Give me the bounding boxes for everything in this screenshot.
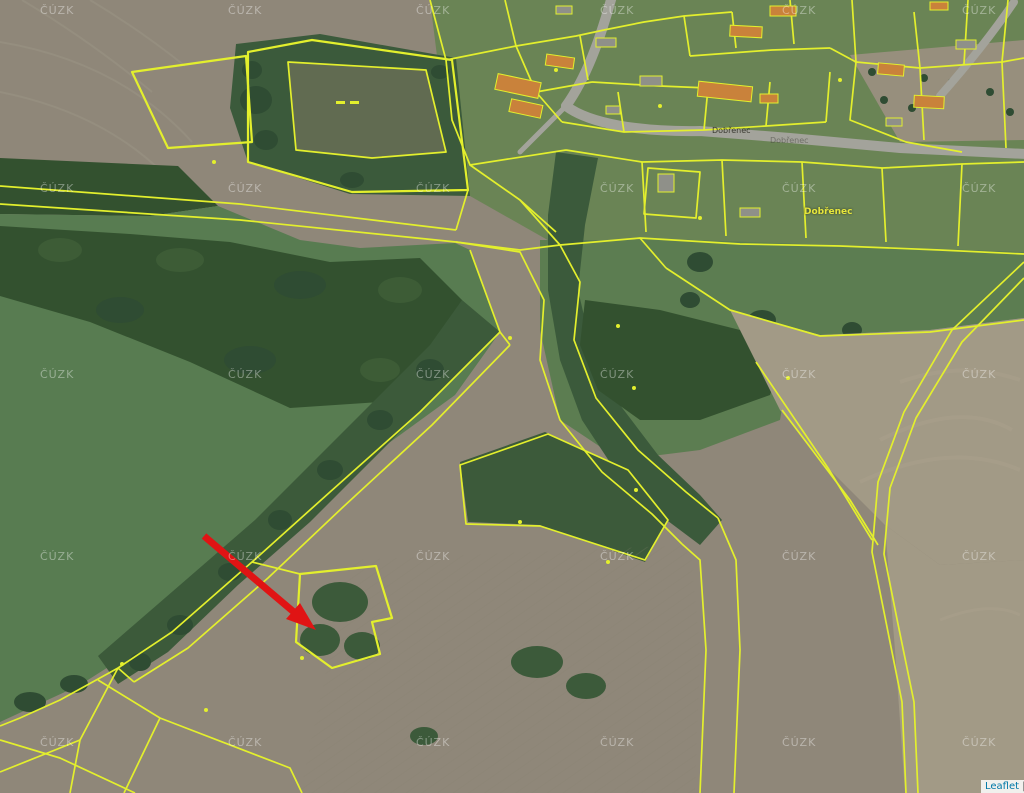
aerial-map-svg [0,0,1024,793]
attribution-separator: | [1019,781,1024,792]
leaflet-link[interactable]: Leaflet [985,781,1019,792]
pond-water [288,62,446,158]
map-viewport[interactable]: ČÚZKČÚZKČÚZKČÚZKČÚZKČÚZKČÚZKČÚZKČÚZKČÚZK… [0,0,1024,793]
leaflet-attribution: Leaflet | [981,780,1024,793]
plowed-field-bottom [300,545,700,793]
